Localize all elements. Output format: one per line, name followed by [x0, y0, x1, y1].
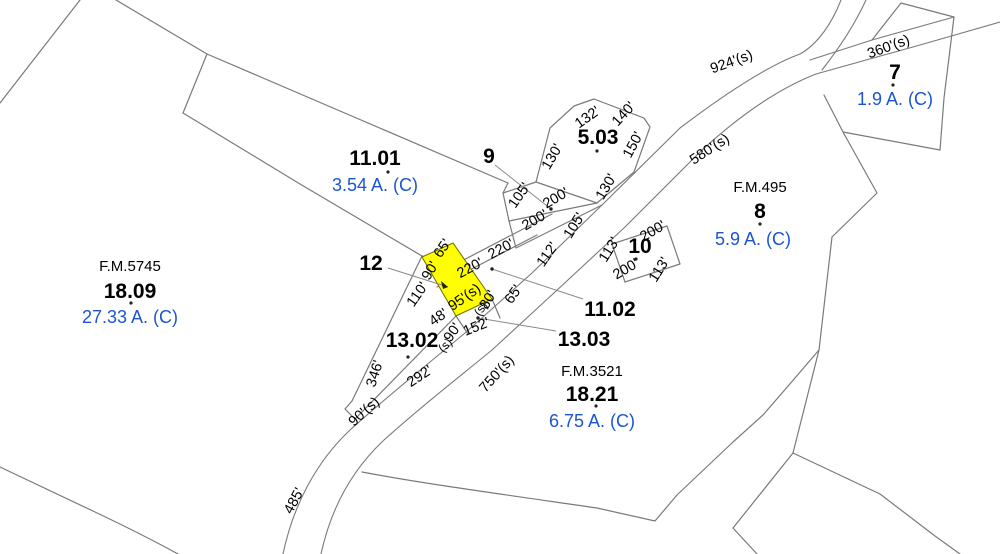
road-line — [283, 0, 841, 554]
parcel-boundary — [872, 3, 954, 40]
dimension-label: 140' — [609, 99, 639, 130]
parcel-number-12: 12 — [359, 252, 382, 275]
parcel-boundary — [0, 0, 80, 103]
parcel-boundary — [0, 467, 178, 554]
parcel-number-7: 7 — [889, 61, 901, 84]
parcel-boundary — [793, 453, 960, 554]
road-distance-label: 924'(s) — [708, 47, 755, 77]
road-distance-label: 360'(s) — [865, 32, 912, 62]
acreage-label-18.21: 6.75 A. (C) — [549, 411, 635, 431]
parcel-number-11.01: 11.01 — [349, 147, 401, 170]
reference-dot-11.01 — [386, 170, 389, 173]
map-canvas: 11.01 3.54 A. (C) F.M.5745 18.09 27.33 A… — [0, 0, 1000, 554]
acreage-label-11.01: 3.54 A. (C) — [332, 175, 418, 195]
reference-dot-5.03 — [595, 149, 598, 152]
reference-dot-11.02 — [490, 267, 493, 270]
acreage-label-8: 5.9 A. (C) — [715, 229, 791, 249]
fm-label-3521: F.M.3521 — [561, 363, 623, 380]
dimension-label: 113' — [646, 254, 673, 285]
parcel-boundary — [116, 0, 207, 54]
dimension-label: 220' — [485, 236, 517, 263]
parcel-number-8: 8 — [754, 200, 766, 223]
parcel-number-18.21: 18.21 — [566, 383, 619, 406]
road-distance-label: 750'(s) — [476, 353, 517, 396]
dimension-label: 150' — [620, 129, 647, 161]
road-distance-label: 485' — [281, 485, 308, 517]
dimension-label: 65' — [502, 282, 526, 307]
dimension-label: 200' — [540, 185, 572, 212]
fm-label-5745: F.M.5745 — [99, 258, 161, 275]
parcel-map: 11.01 3.54 A. (C) F.M.5745 18.09 27.33 A… — [0, 0, 1000, 554]
parcel-boundary — [183, 54, 207, 113]
road-line — [321, 74, 816, 554]
fm-label-495: F.M.495 — [733, 179, 786, 196]
parcel-number-11.02: 11.02 — [584, 298, 635, 321]
dimension-label: 200' — [637, 218, 669, 245]
dimension-label: 152' — [461, 315, 492, 340]
parcel-boundary — [733, 453, 793, 554]
parcel-number-13.03: 13.03 — [558, 328, 611, 351]
acreage-label-7: 1.9 A. (C) — [857, 89, 933, 109]
road-distance-label: 580'(s) — [687, 131, 733, 168]
parcel-number-18.09: 18.09 — [104, 280, 157, 303]
dimension-label: 130' — [539, 141, 566, 173]
parcel-number-13.02: 13.02 — [386, 329, 439, 352]
reference-dot-13.02 — [406, 355, 409, 358]
dimension-label: 112' — [534, 239, 562, 270]
dimension-label: 346' — [363, 358, 387, 389]
dimension-label: 90'(s) — [346, 394, 383, 430]
dimension-label: 200' — [519, 207, 551, 234]
acreage-label-18.09: 27.33 A. (C) — [82, 307, 178, 327]
parcel-boundary — [793, 132, 877, 453]
dimension-label: 105' — [561, 210, 589, 242]
parcel-number-9: 9 — [483, 145, 495, 168]
dimension-label: 292' — [404, 362, 436, 390]
dimension-label: 113' — [596, 234, 623, 265]
road-line — [822, 0, 866, 70]
parcel-boundaries — [0, 0, 960, 554]
